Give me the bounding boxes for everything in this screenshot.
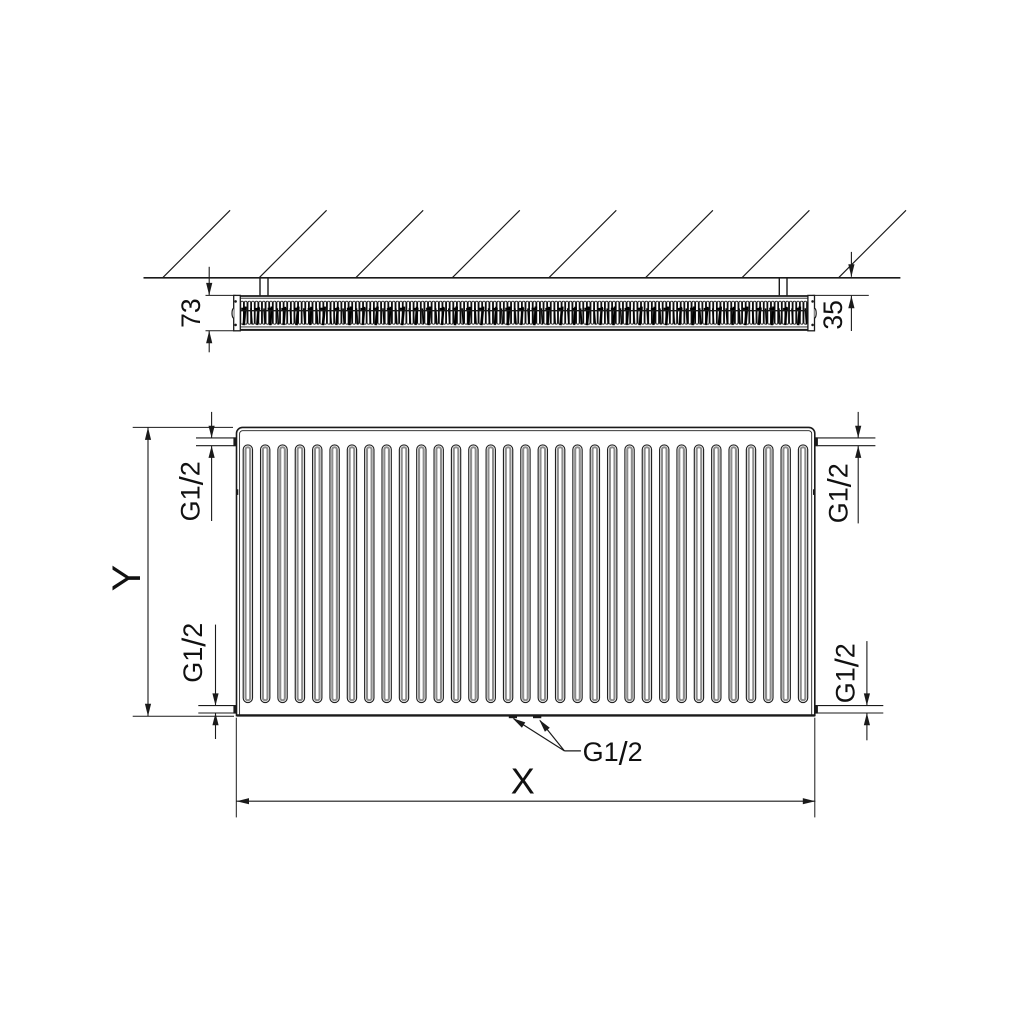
svg-text:73: 73 (176, 298, 206, 327)
svg-text:35: 35 (818, 300, 848, 329)
svg-text:X: X (511, 760, 535, 801)
svg-text:G1/2: G1/2 (583, 735, 643, 771)
svg-text:G1/2: G1/2 (176, 623, 212, 683)
svg-text:G1/2: G1/2 (829, 643, 865, 703)
svg-text:Y: Y (105, 565, 149, 592)
svg-text:G1/2: G1/2 (174, 461, 210, 521)
svg-text:G1/2: G1/2 (822, 463, 858, 523)
